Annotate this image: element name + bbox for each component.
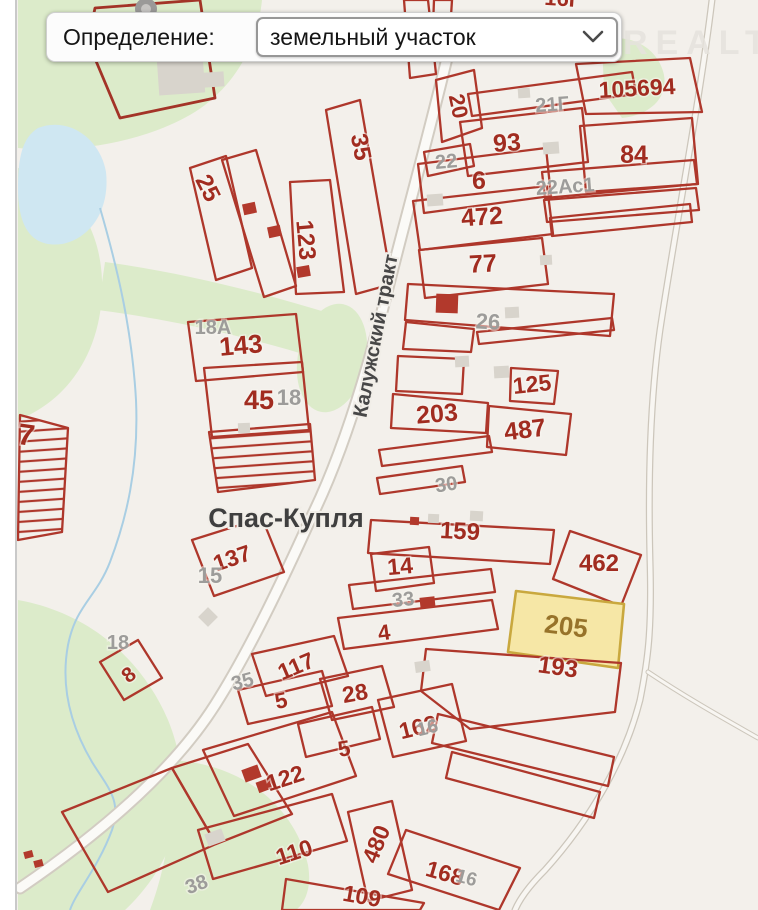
gray-building [428, 514, 439, 524]
gray-building [518, 88, 531, 99]
definition-label: Определение: [63, 24, 215, 51]
address-label: 15 [198, 563, 222, 588]
place-label: Спас-Купля [208, 503, 364, 533]
definition-control-bar: Определение: земельный участок [46, 12, 622, 62]
parcel-label: 84 [620, 141, 648, 169]
gray-building [204, 71, 225, 87]
address-label: 21Г [535, 93, 570, 117]
definition-dropdown[interactable]: земельный участок [256, 17, 618, 57]
red-building [410, 517, 419, 525]
parcel-label: 193 [536, 651, 579, 683]
parcel-label: 159 [439, 517, 480, 546]
gray-building [238, 423, 250, 433]
parcel-label: 472 [460, 202, 504, 233]
parcel-label: 35 [345, 131, 377, 162]
address-label: 30 [434, 473, 459, 498]
parcel-label: 6 [472, 167, 486, 195]
parcel-label: 28 [340, 678, 370, 708]
parcel-label: 20 [444, 92, 474, 121]
gray-building [505, 307, 520, 319]
parcel-label: 125 [512, 369, 553, 399]
selected-parcel-label: 205 [543, 608, 590, 643]
gray-building [540, 255, 553, 266]
parcel-label: 123 [290, 219, 320, 261]
address-label: 26 [475, 308, 501, 334]
parcel-label: 77 [468, 249, 497, 278]
address-label: 22 [434, 150, 458, 174]
gray-building [494, 366, 510, 379]
map-canvas[interactable]: 10569416Г2093846472772512335143452034871… [0, 0, 758, 910]
address-label: 18 [107, 632, 129, 654]
parcel-label: 45 [244, 385, 274, 415]
gray-building [157, 56, 205, 95]
gray-building [455, 356, 470, 368]
left-gutter [0, 0, 17, 910]
address-label: 18А [195, 317, 232, 339]
chevron-down-icon [582, 30, 604, 44]
map-screenshot: 10569416Г2093846472772512335143452034871… [0, 0, 758, 910]
parcel-label: 203 [415, 398, 459, 430]
gray-building [414, 660, 430, 673]
parcel-outline[interactable] [209, 424, 315, 492]
parcel-label: 14 [386, 552, 414, 580]
definition-dropdown-value: земельный участок [270, 24, 476, 51]
parcel-label: 462 [579, 550, 619, 577]
gray-building [543, 141, 560, 154]
parcel-label: 105694 [598, 73, 676, 103]
gray-building [427, 193, 444, 206]
address-label: 33 [391, 588, 415, 612]
red-building [419, 596, 435, 609]
address-label: 22Ас1 [535, 174, 595, 200]
parcel-label: 487 [503, 414, 548, 447]
address-label: 18 [277, 385, 301, 410]
red-building [436, 294, 459, 314]
parcel-label: 93 [492, 128, 522, 158]
red-building [296, 265, 311, 278]
